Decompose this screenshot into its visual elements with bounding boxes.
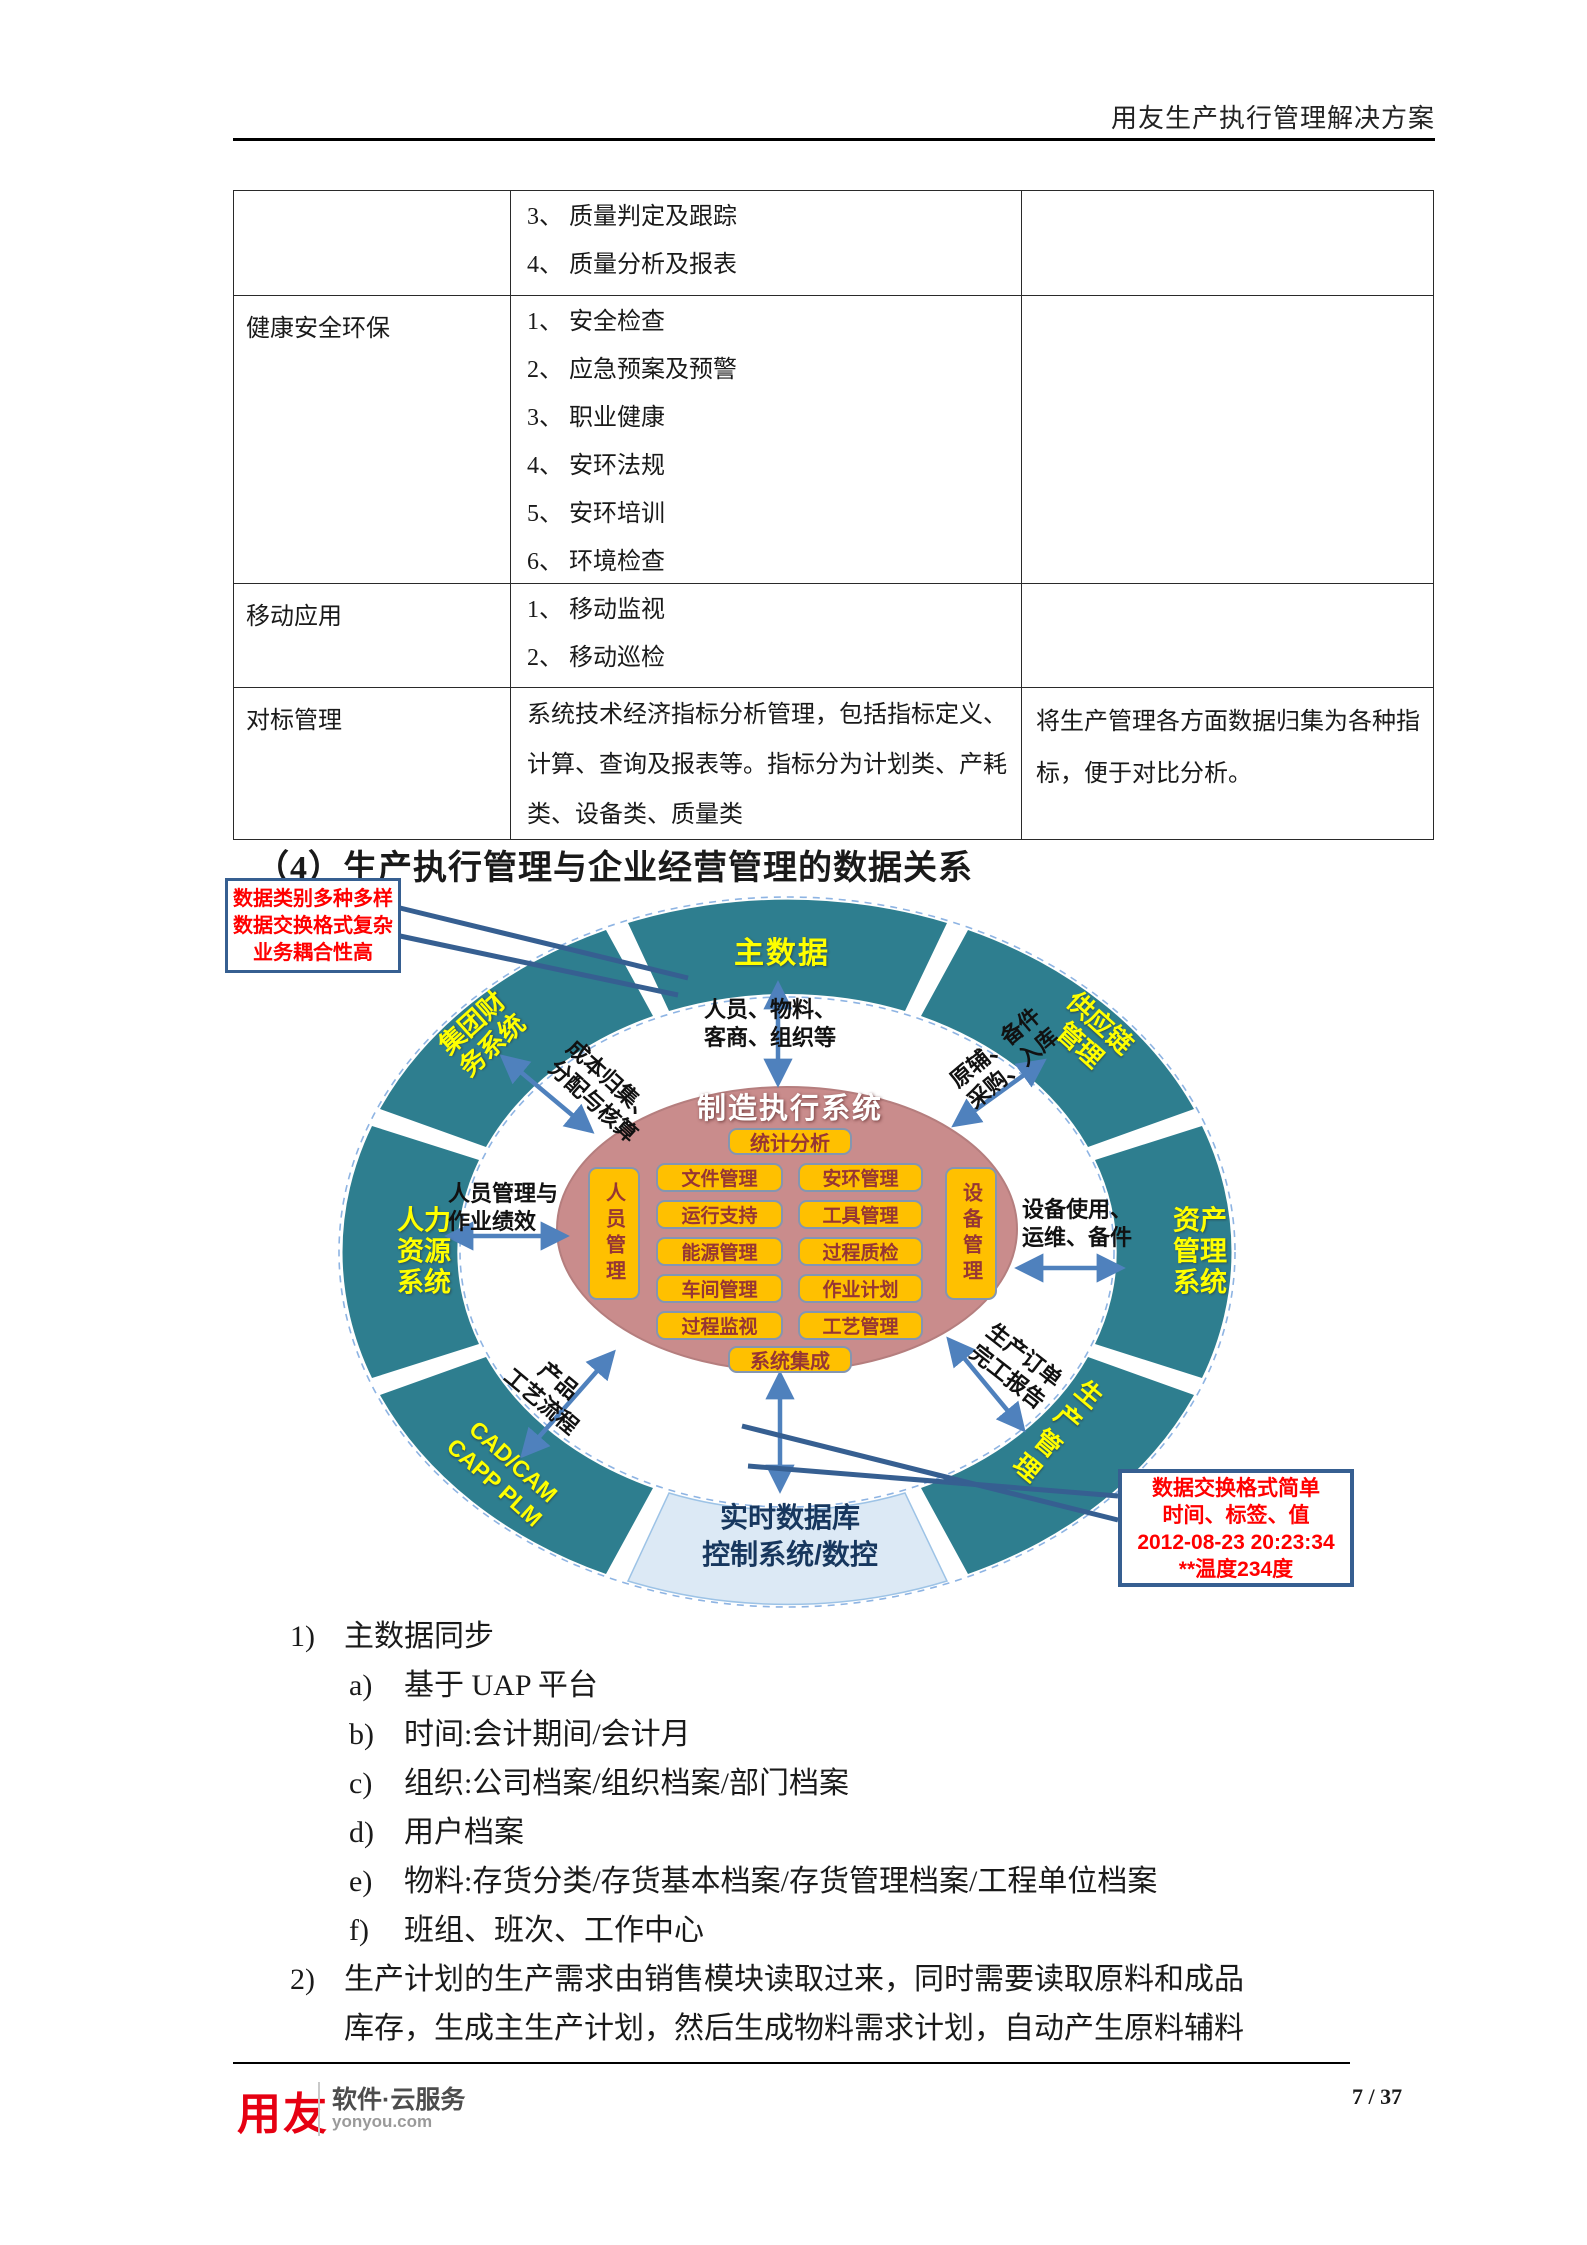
logo-site: yonyou.com (332, 2112, 432, 2132)
table-row: 3、 质量判定及跟踪 4、 质量分析及报表 (234, 191, 1433, 295)
list-marker: 1) (290, 1620, 344, 1654)
row-item: 2、 应急预案及预警 (527, 346, 1011, 394)
yonyou-logo: 用友 (237, 2078, 329, 2142)
row-note (1022, 296, 1433, 583)
document-page: 用友生产执行管理解决方案 3、 质量判定及跟踪 4、 质量分析及报表 健康安全环… (0, 0, 1587, 2245)
row-item: 4、 质量分析及报表 (527, 241, 1011, 289)
table-row: 对标管理 系统技术经济指标分析管理，包括指标定义、计算、查询及报表等。指标分为计… (234, 687, 1433, 839)
row-item: 4、 安环法规 (527, 442, 1011, 490)
pointer-line (748, 1466, 1118, 1496)
row-note: 将生产管理各方面数据归集为各种指标，便于对比分析。 (1022, 688, 1433, 839)
list-marker: f) (349, 1914, 404, 1948)
list-marker: d) (349, 1816, 404, 1850)
logo-tagline: 软件·云服务 (332, 2080, 465, 2116)
row-item: 1、 移动监视 (527, 586, 1011, 634)
list-marker: e) (349, 1865, 404, 1899)
row-note (1022, 584, 1433, 687)
row-item: 3、 职业健康 (527, 394, 1011, 442)
callout-box-complex-format: 数据类别多种多样 数据交换格式复杂 业务耦合性高 (225, 878, 401, 973)
pointer-line (742, 1426, 1118, 1520)
row-item: 5、 安环培训 (527, 490, 1011, 538)
footer-rule (233, 2062, 1350, 2064)
row-item: 1、 安全检查 (527, 298, 1011, 346)
list-item: a)基于 UAP 平台 (349, 1660, 598, 1704)
row-item: 6、 环境检查 (527, 538, 1011, 586)
row-note (1022, 191, 1433, 295)
list-item: f)班组、班次、工作中心 (349, 1905, 704, 1949)
table-row: 移动应用 1、 移动监视 2、 移动巡检 (234, 583, 1433, 687)
list-item-continuation: 库存，生成主生产计划，然后生成物料需求计划，自动产生原料辅料 (344, 2003, 1244, 2047)
row-item: 3、 质量判定及跟踪 (527, 193, 1011, 241)
list-item: c)组织:公司档案/组织档案/部门档案 (349, 1758, 849, 1802)
list-marker: c) (349, 1767, 404, 1801)
row-label: 对标管理 (234, 688, 511, 839)
list-item: 2)生产计划的生产需求由销售模块读取过来，同时需要读取原料和成品 (290, 1954, 1244, 1998)
list-item: 1)主数据同步 (290, 1611, 494, 1655)
row-label: 移动应用 (234, 584, 511, 687)
row-text: 系统技术经济指标分析管理，包括指标定义、计算、查询及报表等。指标分为计划类、产耗… (511, 688, 1022, 839)
feature-table: 3、 质量判定及跟踪 4、 质量分析及报表 健康安全环保 1、 安全检查 2、 … (233, 190, 1434, 840)
logo-divider (318, 2082, 320, 2136)
row-label: 健康安全环保 (234, 296, 511, 583)
header-rule (233, 138, 1435, 141)
list-marker: 2) (290, 1963, 344, 1997)
list-item: d)用户档案 (349, 1807, 524, 1851)
data-relationship-diagram: 主数据 供应链 管理 资产 管理 系统 生产管理 实时数据库 控制系统/数控 C… (192, 878, 1442, 1678)
page-header-title: 用友生产执行管理解决方案 (1111, 98, 1435, 135)
list-marker: a) (349, 1669, 404, 1703)
list-item: b)时间:会计期间/会计月 (349, 1709, 691, 1753)
table-row: 健康安全环保 1、 安全检查 2、 应急预案及预警 3、 职业健康 4、 安环法… (234, 295, 1433, 583)
callout-box-simple-format: 数据交换格式简单 时间、标签、值 2012-08-23 20:23:34 **温… (1118, 1469, 1354, 1587)
list-item: e)物料:存货分类/存货基本档案/存货管理档案/工程单位档案 (349, 1856, 1157, 1900)
page-number: 7 / 37 (1352, 2084, 1402, 2110)
list-marker: b) (349, 1718, 404, 1752)
row-label (234, 191, 511, 295)
row-item: 2、 移动巡检 (527, 634, 1011, 682)
